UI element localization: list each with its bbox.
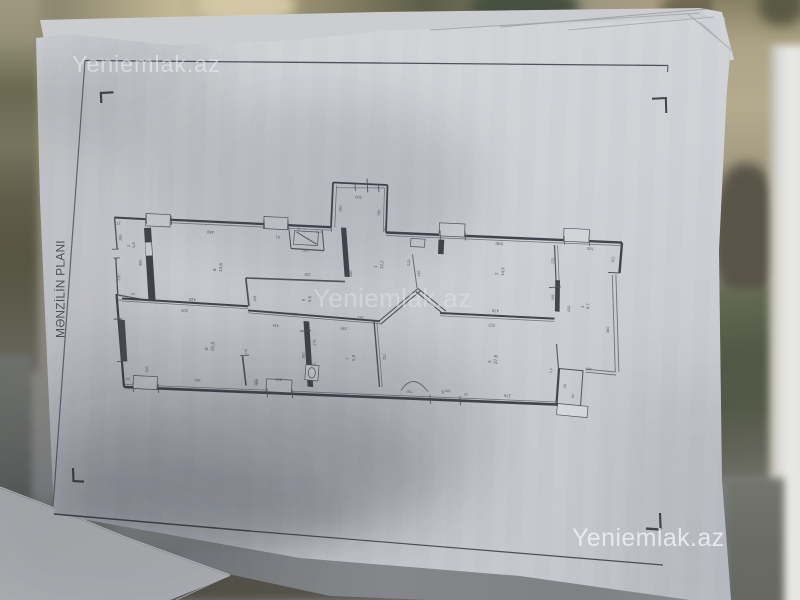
svg-text:527: 527 <box>487 322 495 328</box>
svg-text:37,5: 37,5 <box>316 230 322 234</box>
svg-text:MƏNZİLİN PLANI: MƏNZİLİN PLANI <box>54 240 68 338</box>
svg-text:170: 170 <box>244 349 248 355</box>
svg-text:470: 470 <box>491 308 499 314</box>
svg-text:80: 80 <box>383 227 387 231</box>
svg-text:14,9: 14,9 <box>500 267 505 276</box>
svg-text:173: 173 <box>313 340 317 346</box>
svg-text:360: 360 <box>606 327 610 333</box>
svg-text:170: 170 <box>551 258 555 264</box>
svg-text:90: 90 <box>441 390 445 394</box>
svg-text:420: 420 <box>188 297 196 303</box>
svg-text:430: 430 <box>567 306 571 312</box>
svg-text:800: 800 <box>275 377 282 381</box>
svg-text:30: 30 <box>464 392 468 396</box>
svg-text:290: 290 <box>340 326 347 330</box>
svg-text:170: 170 <box>117 274 121 281</box>
svg-text:30: 30 <box>126 377 130 381</box>
svg-text:190: 190 <box>119 234 123 241</box>
svg-text:730: 730 <box>406 389 413 393</box>
svg-text:180: 180 <box>377 209 381 216</box>
svg-text:251: 251 <box>383 354 387 360</box>
svg-text:60: 60 <box>131 292 135 296</box>
svg-text:9: 9 <box>301 298 306 301</box>
svg-text:134: 134 <box>253 296 257 302</box>
svg-text:101: 101 <box>611 256 615 263</box>
svg-text:7: 7 <box>345 357 350 360</box>
svg-text:5,8: 5,8 <box>307 295 312 302</box>
svg-text:180: 180 <box>585 367 592 371</box>
svg-text:130: 130 <box>304 272 311 276</box>
svg-text:4: 4 <box>487 360 493 363</box>
svg-text:200: 200 <box>354 194 362 200</box>
svg-text:640: 640 <box>495 241 503 247</box>
svg-text:21,0: 21,0 <box>210 341 216 351</box>
svg-text:340: 340 <box>349 271 353 277</box>
svg-text:153: 153 <box>357 315 364 319</box>
svg-text:10: 10 <box>297 228 301 232</box>
svg-text:30: 30 <box>118 298 122 302</box>
svg-text:120: 120 <box>302 248 309 252</box>
svg-text:260: 260 <box>302 353 306 359</box>
svg-text:27,6: 27,6 <box>493 354 499 364</box>
svg-text:375: 375 <box>503 393 511 399</box>
svg-text:700: 700 <box>586 246 594 252</box>
svg-text:100: 100 <box>145 367 149 373</box>
svg-text:1: 1 <box>373 265 378 268</box>
svg-text:460: 460 <box>206 229 214 235</box>
svg-text:160: 160 <box>339 205 343 212</box>
svg-text:8,7: 8,7 <box>585 303 590 310</box>
svg-text:100: 100 <box>445 389 451 393</box>
svg-text:2: 2 <box>494 272 499 275</box>
svg-text:12,2: 12,2 <box>379 260 384 269</box>
svg-text:140: 140 <box>417 271 421 277</box>
svg-text:58: 58 <box>563 384 567 388</box>
svg-text:177: 177 <box>114 221 121 225</box>
svg-text:13,6: 13,6 <box>218 262 223 272</box>
svg-text:300: 300 <box>139 259 143 266</box>
svg-text:505: 505 <box>180 308 188 314</box>
svg-text:434: 434 <box>272 323 279 327</box>
svg-text:213: 213 <box>407 260 411 266</box>
svg-text:3,1: 3,1 <box>302 228 306 233</box>
svg-text:150: 150 <box>194 378 201 382</box>
svg-text:3,8: 3,8 <box>131 242 136 248</box>
svg-text:290: 290 <box>290 312 297 316</box>
svg-text:100: 100 <box>255 379 259 385</box>
svg-text:65: 65 <box>312 362 316 366</box>
svg-text:138: 138 <box>551 295 555 301</box>
svg-text:80: 80 <box>571 394 575 398</box>
svg-text:6: 6 <box>204 347 210 350</box>
svg-text:61: 61 <box>276 235 281 239</box>
svg-text:8: 8 <box>212 268 217 271</box>
svg-text:5,0: 5,0 <box>549 368 553 373</box>
svg-text:5,0: 5,0 <box>351 354 356 361</box>
